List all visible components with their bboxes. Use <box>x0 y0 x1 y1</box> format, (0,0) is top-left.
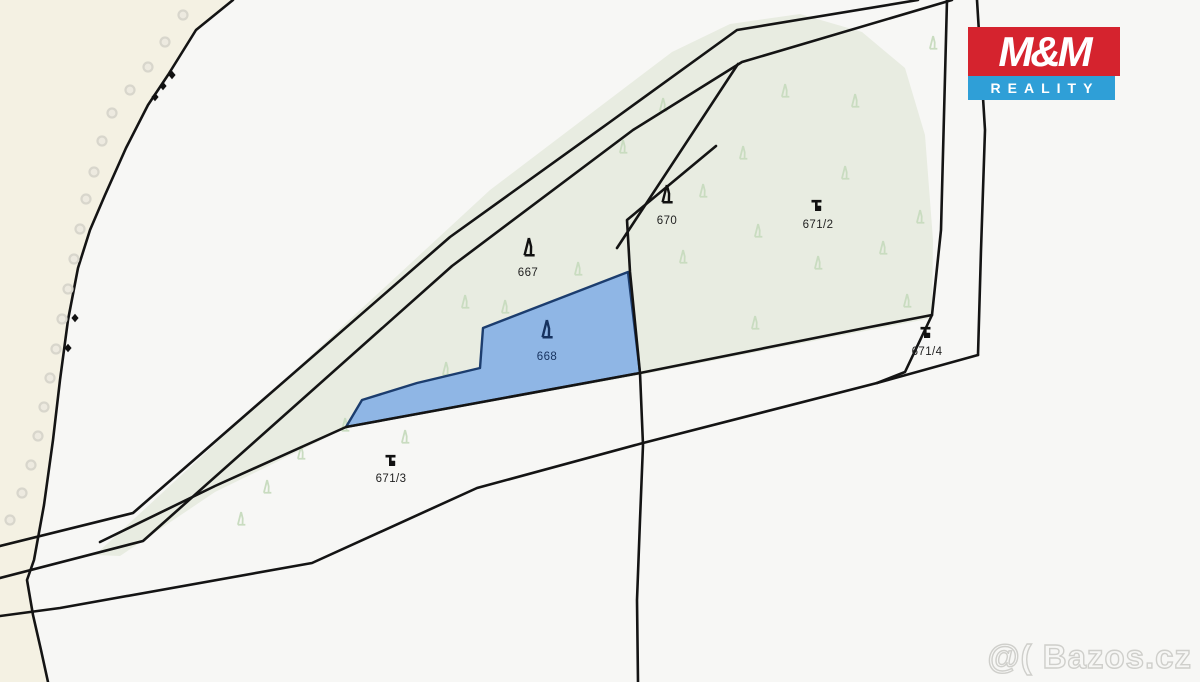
parcel-label-671-4: 671/4 <box>912 346 943 358</box>
mm-reality-logo: M&M REALITY <box>968 27 1120 100</box>
grassland-icon-671-3 <box>386 456 396 466</box>
map-canvas: 667 668 670 671/2 671/3 671/4 <box>0 0 1200 682</box>
parcel-label-670: 670 <box>657 215 677 227</box>
forest-area <box>95 14 933 556</box>
mm-reality-logo-subtitle: REALITY <box>968 76 1115 100</box>
cadastral-map-screenshot: 667 668 670 671/2 671/3 671/4 M&M REALIT… <box>0 0 1200 682</box>
parcel-label-668: 668 <box>537 351 557 363</box>
bazos-watermark: @( Bazos.cz <box>987 638 1192 676</box>
parcel-label-667: 667 <box>518 267 538 279</box>
parcel-label-671-2: 671/2 <box>803 219 834 231</box>
mm-reality-logo-wordmark: M&M <box>968 27 1120 76</box>
parcel-label-671-3: 671/3 <box>376 473 407 485</box>
cream-terrain-area <box>0 0 233 682</box>
